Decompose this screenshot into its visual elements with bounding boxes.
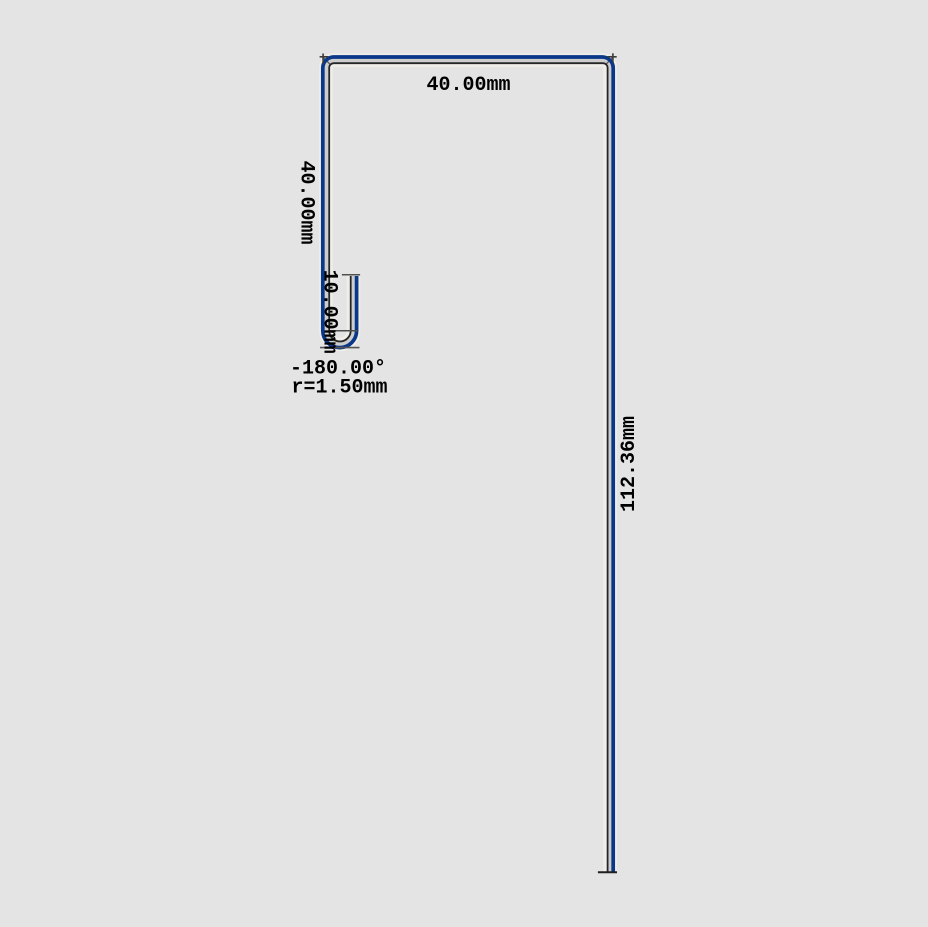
svg-text:r=1.50mm: r=1.50mm	[292, 376, 388, 399]
svg-text:40.00mm: 40.00mm	[295, 160, 318, 244]
svg-text:40.00mm: 40.00mm	[426, 74, 510, 97]
svg-text:10.00mm: 10.00mm	[317, 270, 340, 354]
svg-text:112.36mm: 112.36mm	[618, 416, 641, 512]
